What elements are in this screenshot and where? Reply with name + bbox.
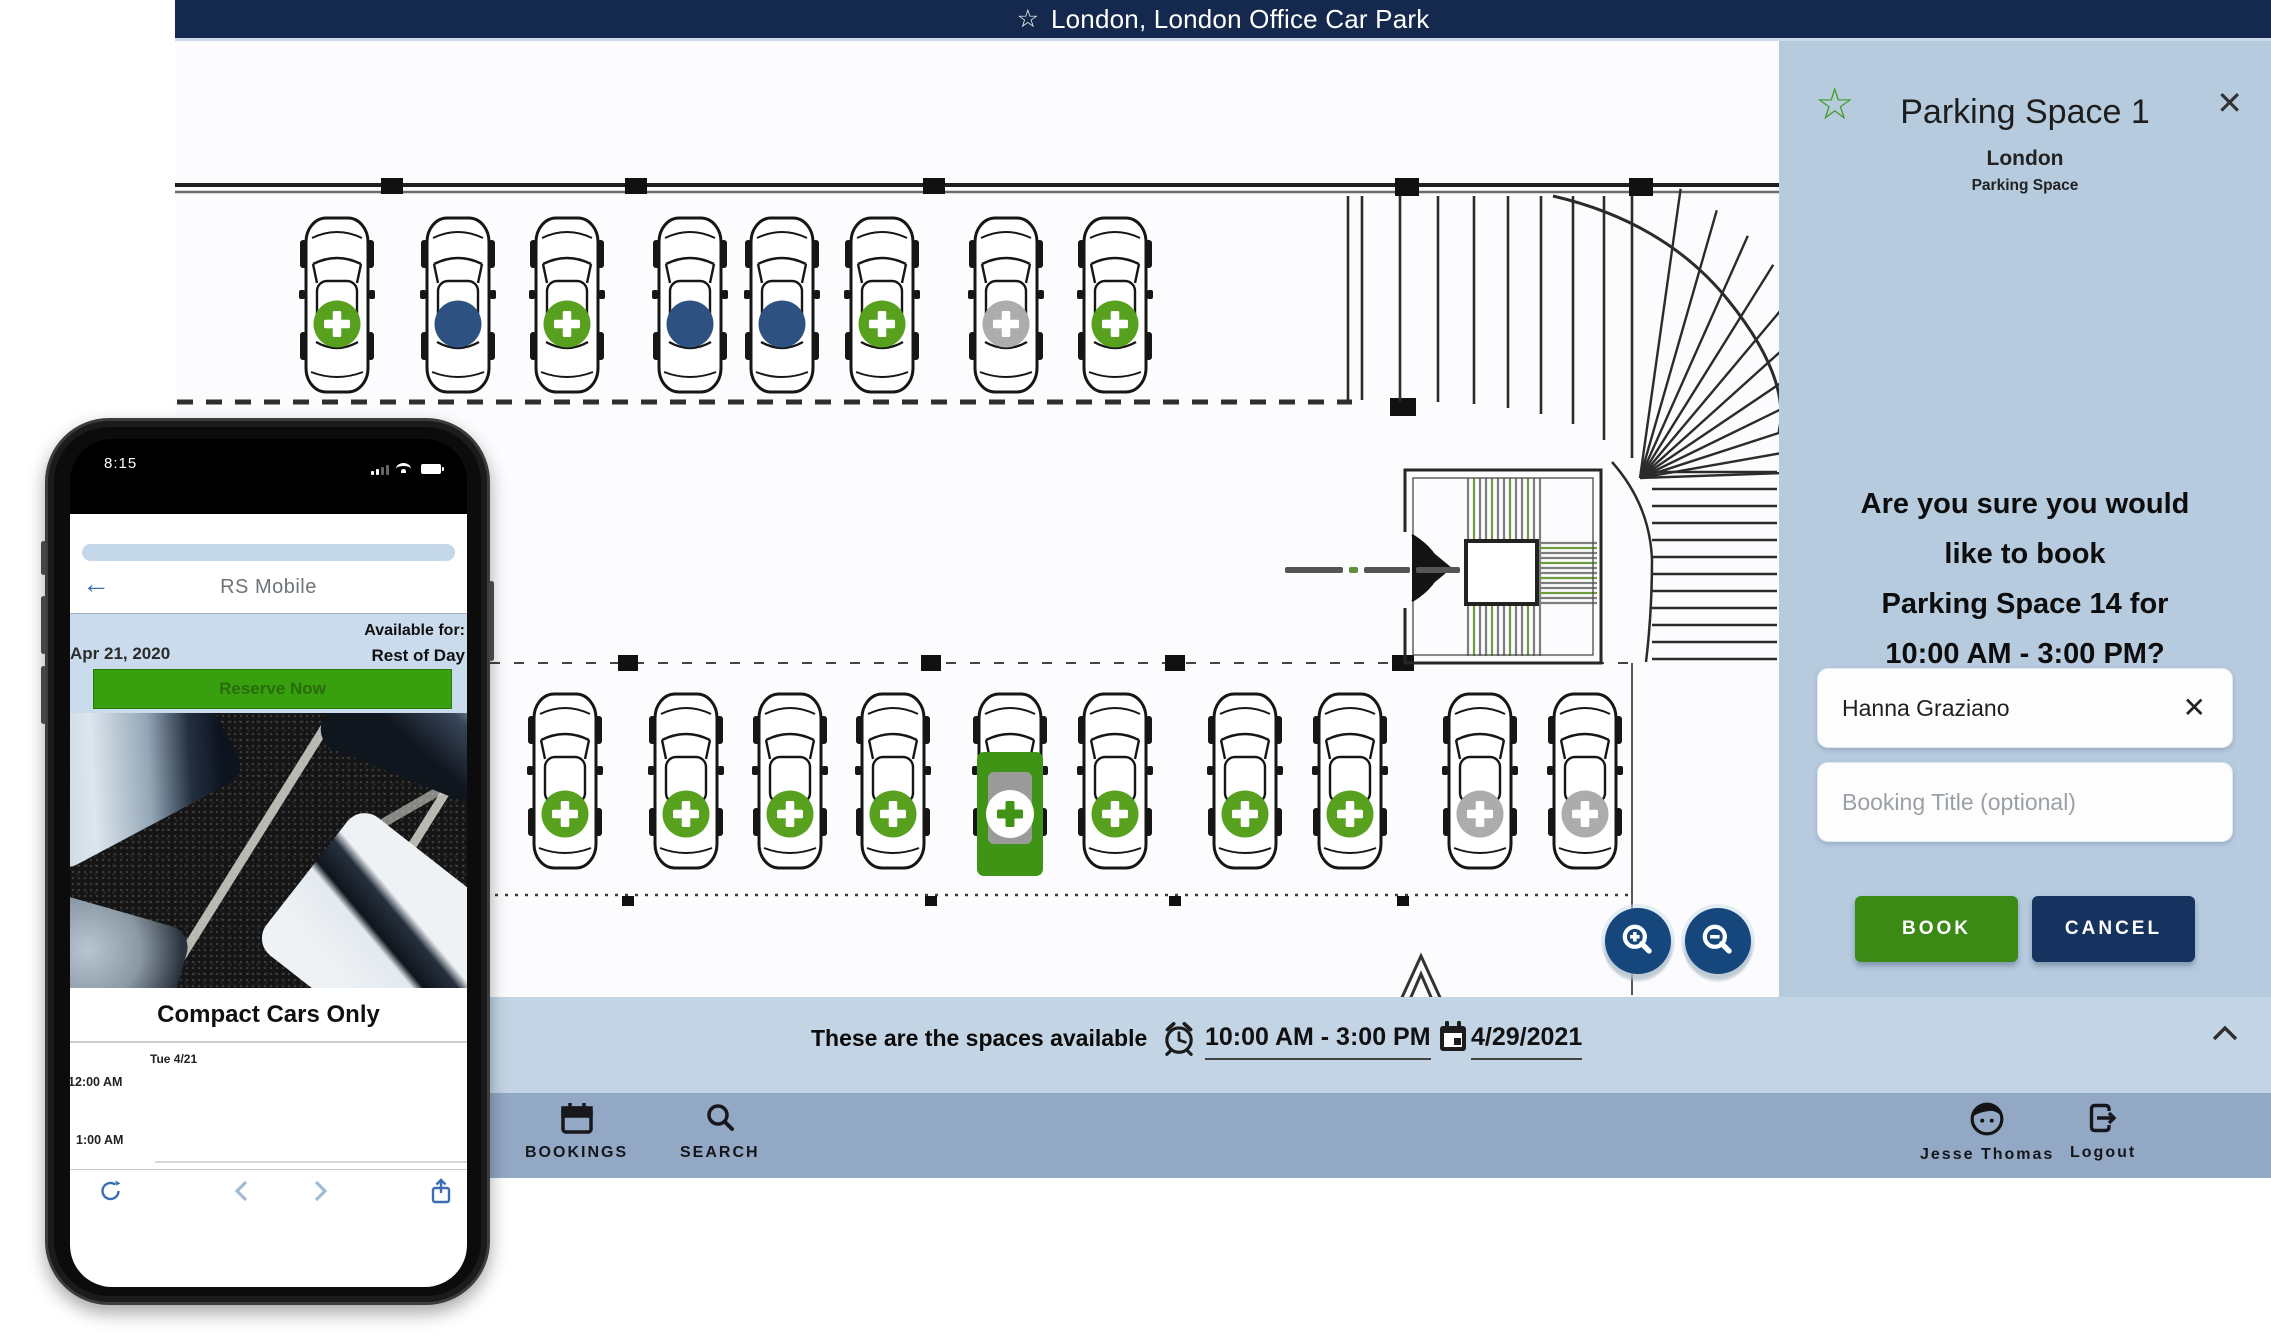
status-time: 8:15 bbox=[104, 455, 137, 472]
space-badge-booked[interactable] bbox=[759, 301, 806, 348]
parked-car bbox=[1077, 694, 1153, 868]
mobile-date: Apr 21, 2020 bbox=[70, 644, 170, 664]
reload-icon[interactable] bbox=[98, 1178, 124, 1209]
favorite-star-icon[interactable]: ☆ bbox=[1017, 7, 1039, 32]
mobile-app-title: RS Mobile bbox=[70, 576, 467, 599]
back-icon[interactable] bbox=[230, 1178, 254, 1209]
booking-title-input[interactable] bbox=[1818, 789, 2232, 816]
available-for-label: Available for: bbox=[364, 622, 465, 640]
phone-volume-up bbox=[41, 596, 46, 654]
zoom-out-button[interactable] bbox=[1685, 908, 1751, 974]
battery-icon bbox=[421, 464, 441, 474]
phone-screen: 8:15 ← RS Mobile Available for: Apr 21, … bbox=[70, 439, 467, 1287]
space-badge-available[interactable] bbox=[1092, 301, 1139, 348]
stairwell-block bbox=[1285, 470, 1601, 663]
date-link[interactable]: 4/29/2021 bbox=[1471, 1023, 1582, 1060]
space-badge-available[interactable] bbox=[859, 301, 906, 348]
schedule-day-label: Tue 4/21 bbox=[150, 1052, 197, 1066]
photo-car bbox=[70, 713, 248, 875]
phone-app-content: ← RS Mobile Available for: Apr 21, 2020 … bbox=[70, 514, 467, 1287]
signal-icon bbox=[371, 465, 389, 475]
space-badge-selected[interactable] bbox=[977, 752, 1043, 876]
space-badge-available[interactable] bbox=[542, 791, 589, 838]
parked-car bbox=[527, 694, 603, 868]
phone-mockup: 8:15 ← RS Mobile Available for: Apr 21, … bbox=[45, 418, 490, 1305]
phone-status-bar: 8:15 bbox=[70, 439, 467, 514]
nav-user[interactable]: Jesse Thomas bbox=[1920, 1101, 2054, 1164]
space-badge-available[interactable] bbox=[870, 791, 917, 838]
share-icon[interactable] bbox=[428, 1178, 454, 1211]
available-for-value: Rest of Day bbox=[371, 646, 465, 666]
parked-car bbox=[648, 694, 724, 868]
photo-caption: Compact Cars Only bbox=[70, 988, 467, 1041]
schedule-time: 1:00 AM bbox=[76, 1133, 123, 1147]
space-badge-unavailable[interactable] bbox=[983, 301, 1030, 348]
phone-power-button bbox=[489, 581, 494, 661]
space-badge-available[interactable] bbox=[1222, 791, 1269, 838]
booking-confirmation-text: Are you sure you would like to book Park… bbox=[1789, 479, 2261, 679]
search-icon bbox=[703, 1101, 737, 1140]
zoom-in-button[interactable] bbox=[1605, 908, 1671, 974]
space-badge-booked[interactable] bbox=[435, 301, 482, 348]
progress-pill bbox=[82, 544, 455, 561]
panel-title: Parking Space 1 bbox=[1849, 93, 2201, 132]
booking-title-field bbox=[1817, 762, 2233, 842]
wifi-icon bbox=[396, 463, 411, 475]
user-avatar-icon bbox=[1969, 1101, 2005, 1142]
booking-panel: ☆ Parking Space 1 ✕ London Parking Space… bbox=[1779, 41, 2271, 997]
clock-icon bbox=[1160, 1019, 1198, 1062]
space-badge-unavailable[interactable] bbox=[1457, 791, 1504, 838]
cancel-button[interactable]: CANCEL bbox=[2032, 896, 2195, 962]
attendee-field: ✕ bbox=[1817, 668, 2233, 748]
phone-volume-down bbox=[41, 666, 46, 724]
day-schedule: Tue 4/21 12:00 AM 1:00 AM bbox=[70, 1041, 467, 1171]
book-button[interactable]: BOOK bbox=[1855, 896, 2018, 962]
nav-search[interactable]: SEARCH bbox=[680, 1101, 760, 1162]
nav-logout[interactable]: Logout bbox=[2070, 1101, 2136, 1162]
parked-car bbox=[1312, 694, 1388, 868]
space-badge-available[interactable] bbox=[544, 301, 591, 348]
parked-car bbox=[1547, 694, 1623, 868]
parked-car bbox=[752, 694, 828, 868]
parked-car bbox=[1442, 694, 1518, 868]
bookings-calendar-icon bbox=[559, 1101, 595, 1140]
panel-location: London bbox=[1779, 147, 2271, 171]
attendee-input[interactable] bbox=[1818, 695, 2183, 722]
lane-direction-arrow bbox=[1399, 956, 1443, 997]
space-badge-available[interactable] bbox=[1327, 791, 1374, 838]
space-badge-available[interactable] bbox=[663, 791, 710, 838]
space-badge-available[interactable] bbox=[1092, 791, 1139, 838]
space-badge-available[interactable] bbox=[767, 791, 814, 838]
parked-car bbox=[855, 694, 931, 868]
space-badge-available[interactable] bbox=[314, 301, 361, 348]
forward-icon[interactable] bbox=[308, 1178, 332, 1209]
parked-car bbox=[1207, 694, 1283, 868]
space-badge-booked[interactable] bbox=[667, 301, 714, 348]
parking-lot-photo bbox=[70, 713, 467, 988]
close-icon[interactable]: ✕ bbox=[2216, 87, 2243, 119]
time-range-link[interactable]: 10:00 AM - 3:00 PM bbox=[1205, 1023, 1431, 1060]
reserve-now-button[interactable]: Reserve Now bbox=[93, 669, 452, 709]
panel-resource-type: Parking Space bbox=[1779, 177, 2271, 195]
space-badge-unavailable[interactable] bbox=[1562, 791, 1609, 838]
calendar-icon bbox=[1435, 1019, 1471, 1060]
reservation-strip: Available for: Apr 21, 2020 Rest of Day … bbox=[70, 613, 467, 714]
clear-attendee-icon[interactable]: ✕ bbox=[2183, 694, 2232, 722]
plan-tiny-label bbox=[1285, 567, 1460, 573]
chevron-up-icon[interactable] bbox=[2212, 1025, 2238, 1047]
browser-toolbar bbox=[70, 1169, 467, 1214]
photo-car bbox=[253, 804, 467, 988]
window-title-bar: ☆ London, London Office Car Park bbox=[175, 0, 2271, 41]
logout-icon bbox=[2086, 1101, 2120, 1140]
photo-car bbox=[70, 888, 193, 988]
location-title: London, London Office Car Park bbox=[1051, 4, 1429, 35]
phone-mute-switch bbox=[41, 541, 46, 575]
schedule-time: 12:00 AM bbox=[70, 1075, 122, 1089]
screenshot-root: ☆ London, London Office Car Park bbox=[0, 0, 2271, 1340]
availability-label: These are the spaces available bbox=[811, 1025, 1147, 1052]
nav-bookings[interactable]: BOOKINGS bbox=[525, 1101, 628, 1162]
